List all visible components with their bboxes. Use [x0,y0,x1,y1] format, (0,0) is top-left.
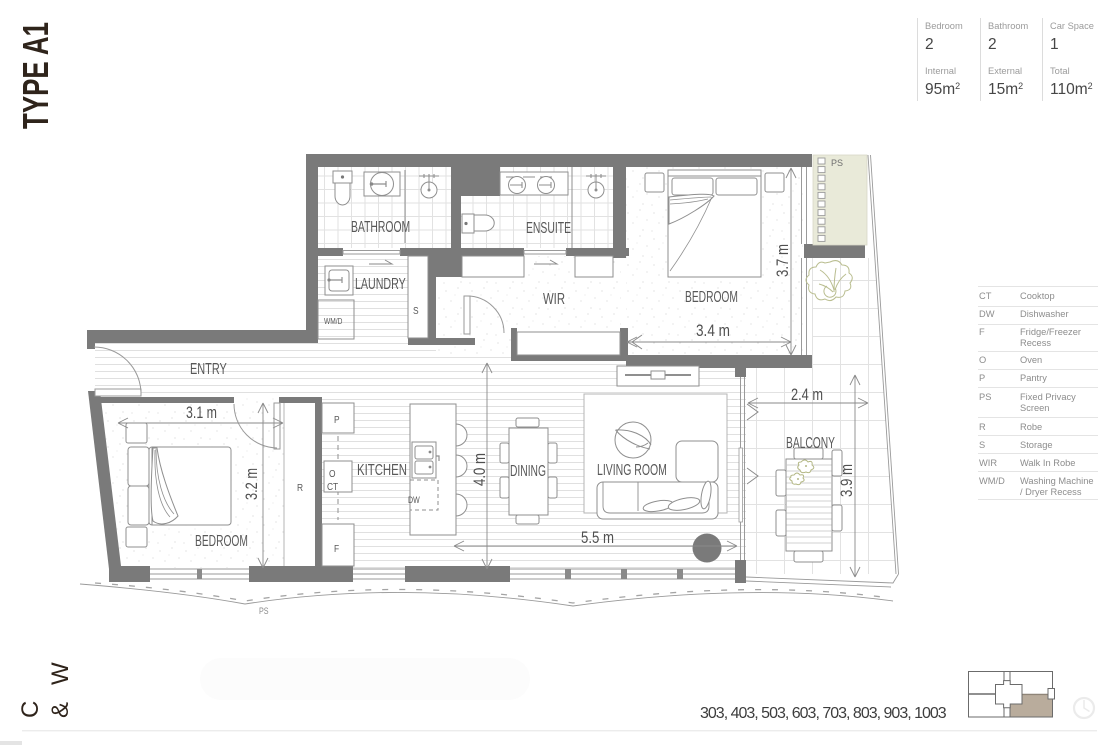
svg-text:/ Dryer Recess: / Dryer Recess [1020,487,1082,497]
svg-text:2: 2 [988,36,997,53]
svg-text:Robe: Robe [1020,422,1042,432]
svg-text:5.5 m: 5.5 m [581,529,614,548]
svg-text:110m2: 110m2 [1050,81,1093,98]
svg-text:Walk In Robe: Walk In Robe [1020,458,1075,468]
svg-text:ENTRY: ENTRY [190,360,227,377]
svg-text:S: S [979,440,985,450]
svg-text:303, 403, 503, 603, 703, 803,: 303, 403, 503, 603, 703, 803, 903, 1003 [700,705,947,722]
svg-text:P: P [334,414,340,426]
svg-text:3.4 m: 3.4 m [696,322,730,341]
svg-text:P: P [979,373,985,383]
svg-text:R: R [979,422,986,432]
svg-text:R: R [297,482,303,494]
svg-text:Car Space: Car Space [1050,21,1094,31]
svg-text:KITCHEN: KITCHEN [357,461,407,478]
svg-text:Internal: Internal [925,66,956,76]
svg-text:TYPE A1: TYPE A1 [16,22,56,129]
svg-text:LAUNDRY: LAUNDRY [355,275,406,292]
svg-text:CT: CT [979,291,992,301]
svg-text:3.9 m: 3.9 m [838,464,857,497]
svg-text:WIR: WIR [543,290,565,307]
svg-text:Cooktop: Cooktop [1020,291,1055,301]
svg-text:Screen: Screen [1020,403,1049,413]
svg-text:3.1 m: 3.1 m [186,404,217,422]
svg-text:Fixed Privacy: Fixed Privacy [1020,392,1076,402]
svg-text:Total: Total [1050,66,1070,76]
svg-text:F: F [979,327,985,337]
svg-text:DW: DW [979,309,995,319]
svg-text:1: 1 [1050,36,1059,53]
svg-text:DINING: DINING [510,462,546,480]
svg-text:95m2: 95m2 [925,81,960,98]
svg-text:2: 2 [925,36,934,53]
svg-text:4.0 m: 4.0 m [471,453,490,486]
svg-text:C: C [17,701,44,718]
svg-text:WM/D: WM/D [979,476,1005,486]
svg-text:Bedroom: Bedroom [925,21,963,31]
svg-text:Dishwasher: Dishwasher [1020,309,1069,319]
svg-text:CT: CT [327,481,338,493]
svg-text:2.4 m: 2.4 m [791,387,823,405]
svg-text:External: External [988,66,1022,76]
svg-text:3.2 m: 3.2 m [244,468,262,500]
svg-text:O: O [329,468,336,480]
svg-text:&W: &W [47,645,74,718]
svg-text:Recess: Recess [1020,338,1051,348]
svg-text:Bathroom: Bathroom [988,21,1029,31]
svg-text:Pantry: Pantry [1020,373,1047,383]
svg-text:Fridge/Freezer: Fridge/Freezer [1020,327,1081,337]
svg-text:WM/D: WM/D [324,316,343,326]
svg-text:BATHROOM: BATHROOM [351,218,410,236]
svg-text:15m2: 15m2 [988,81,1023,98]
svg-text:3.7 m: 3.7 m [774,244,793,277]
svg-text:Storage: Storage [1020,440,1053,450]
svg-text:Oven: Oven [1020,355,1042,365]
svg-text:BEDROOM: BEDROOM [685,288,738,306]
svg-text:DW: DW [408,495,420,505]
svg-text:LIVING ROOM: LIVING ROOM [597,461,667,479]
svg-text:O: O [979,355,986,365]
svg-text:S: S [413,305,419,317]
svg-text:ENSUITE: ENSUITE [526,219,571,237]
svg-text:Washing Machine: Washing Machine [1020,476,1094,486]
svg-text:PS: PS [259,606,269,616]
svg-text:WIR: WIR [979,458,997,468]
svg-text:BALCONY: BALCONY [786,434,835,452]
svg-text:PS: PS [831,158,843,168]
svg-text:BEDROOM: BEDROOM [195,532,248,550]
svg-text:F: F [334,543,339,555]
svg-text:PS: PS [979,392,991,402]
